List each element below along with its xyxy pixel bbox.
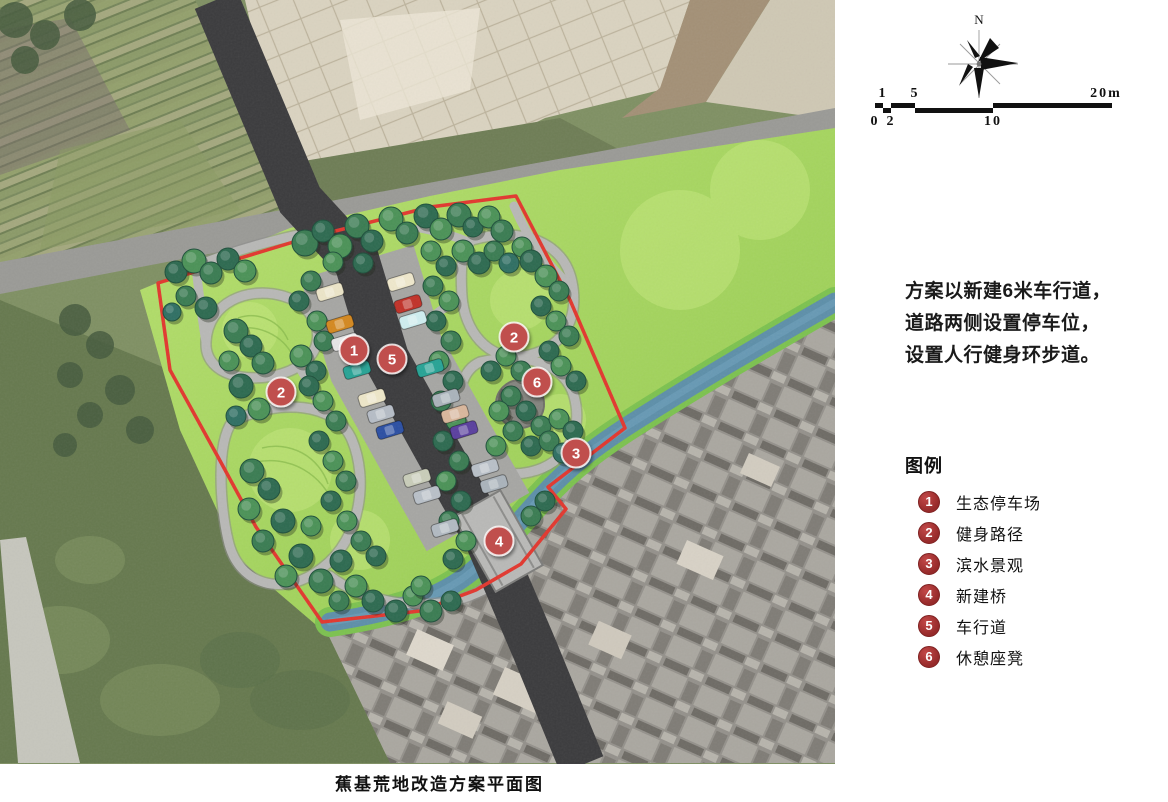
photo-grain (0, 0, 835, 764)
legend-badge: 6 (918, 646, 940, 668)
map-marker: 6 (523, 368, 552, 397)
scale-label: 1 (879, 86, 888, 102)
legend-item: 6休憩座凳 (905, 641, 1125, 672)
map-marker: 3 (562, 439, 591, 468)
aerial-photo: 1526234 (0, 0, 835, 765)
legend-item: 5车行道 (905, 610, 1125, 641)
scale-label: 2 (887, 114, 896, 130)
marker-number: 3 (572, 446, 580, 463)
marker-number: 4 (495, 534, 504, 551)
scale-label: 0 (871, 114, 880, 130)
map-marker: 1 (340, 336, 369, 365)
scale-label: 20m (1090, 86, 1122, 102)
map-marker: 4 (485, 527, 514, 556)
legend: 图例 1生态停车场2健身路径3滨水景观4新建桥5车行道6休憩座凳 (905, 452, 1125, 672)
legend-badge: 2 (918, 522, 940, 544)
map-marker: 5 (378, 345, 407, 374)
legend-item: 2健身路径 (905, 517, 1125, 548)
scale-label: 10 (984, 114, 1002, 130)
legend-title: 图例 (905, 452, 1125, 478)
north-label: N (974, 12, 984, 27)
map-marker: 2 (267, 378, 296, 407)
legend-item-label: 车行道 (956, 614, 1007, 638)
map-marker: 2 (500, 323, 529, 352)
scale-segment (875, 103, 883, 108)
legend-item: 3滨水景观 (905, 548, 1125, 579)
legend-item: 1生态停车场 (905, 486, 1125, 517)
scale-segment (993, 103, 1112, 108)
legend-badge: 1 (918, 491, 940, 513)
legend-item-label: 滨水景观 (956, 552, 1024, 576)
scale-label: 5 (911, 86, 920, 102)
legend-badge: 4 (918, 584, 940, 606)
scale-segment (891, 103, 915, 108)
legend-badge: 3 (918, 553, 940, 575)
description-line: 设置人行健身环步道。 (905, 340, 1135, 372)
scale-segment (915, 108, 993, 113)
description-line: 道路两侧设置停车位， (905, 308, 1135, 340)
legend-items: 1生态停车场2健身路径3滨水景观4新建桥5车行道6休憩座凳 (905, 486, 1125, 672)
scale-bar: 1520m0210 (860, 92, 1150, 128)
scale-segment (883, 108, 891, 113)
marker-number: 2 (277, 385, 285, 402)
legend-item-label: 休憩座凳 (956, 645, 1024, 669)
legend-item: 4新建桥 (905, 579, 1125, 610)
legend-item-label: 新建桥 (956, 583, 1007, 607)
legend-badge: 5 (918, 615, 940, 637)
compass-blades (959, 38, 1018, 98)
marker-number: 1 (350, 343, 358, 360)
site-plan-map: 1526234 (0, 0, 835, 802)
marker-number: 2 (510, 330, 518, 347)
marker-number: 5 (388, 352, 396, 369)
marker-number: 6 (533, 375, 541, 392)
plan-description: 方案以新建6米车行道， 道路两侧设置停车位， 设置人行健身环步道。 (905, 276, 1135, 372)
description-line: 方案以新建6米车行道， (905, 276, 1135, 308)
legend-item-label: 健身路径 (956, 521, 1024, 545)
north-arrow: N (938, 6, 1022, 102)
compass-hub (977, 62, 982, 67)
legend-item-label: 生态停车场 (956, 490, 1041, 514)
plan-sheet: 1526234 N 1520m0210 方案以新建6米车行道， 道路两侧设置停车… (0, 0, 1168, 802)
drawing-caption: 蕉基荒地改造方案平面图 (335, 770, 544, 795)
